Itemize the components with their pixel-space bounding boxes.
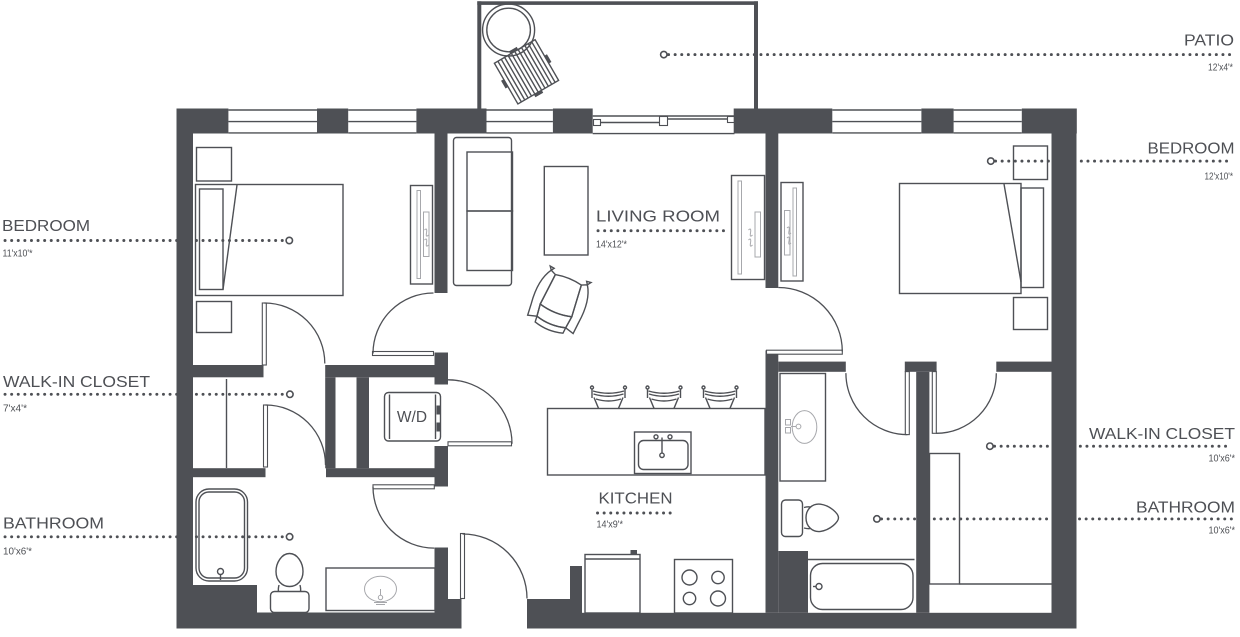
svg-text:10'x6'*: 10'x6'* <box>1209 525 1236 537</box>
svg-text:7'x4'*: 7'x4'* <box>3 403 27 415</box>
svg-text:10'x6'*: 10'x6'* <box>1209 453 1236 465</box>
svg-text:14'x12'*: 14'x12'* <box>596 239 627 251</box>
svg-text:10'x6'*: 10'x6'* <box>3 546 32 558</box>
svg-text:KITCHEN: KITCHEN <box>599 491 673 508</box>
svg-text:12'x10'*: 12'x10'* <box>1205 171 1234 183</box>
svg-text:WALK-IN CLOSET: WALK-IN CLOSET <box>1089 426 1235 443</box>
svg-text:11'x10'*: 11'x10'* <box>3 248 33 260</box>
svg-text:BEDROOM: BEDROOM <box>1148 141 1235 158</box>
svg-text:BATHROOM: BATHROOM <box>1136 500 1235 517</box>
svg-text:12'x4'*: 12'x4'* <box>1208 62 1233 74</box>
svg-text:PATIO: PATIO <box>1184 33 1234 50</box>
svg-text:14'x9'*: 14'x9'* <box>597 519 624 531</box>
svg-text:BATHROOM: BATHROOM <box>3 516 104 533</box>
svg-text:WALK-IN CLOSET: WALK-IN CLOSET <box>3 374 150 391</box>
svg-text:BEDROOM: BEDROOM <box>2 218 90 235</box>
svg-text:W/D: W/D <box>397 409 427 426</box>
svg-text:LIVING ROOM: LIVING ROOM <box>596 209 720 226</box>
